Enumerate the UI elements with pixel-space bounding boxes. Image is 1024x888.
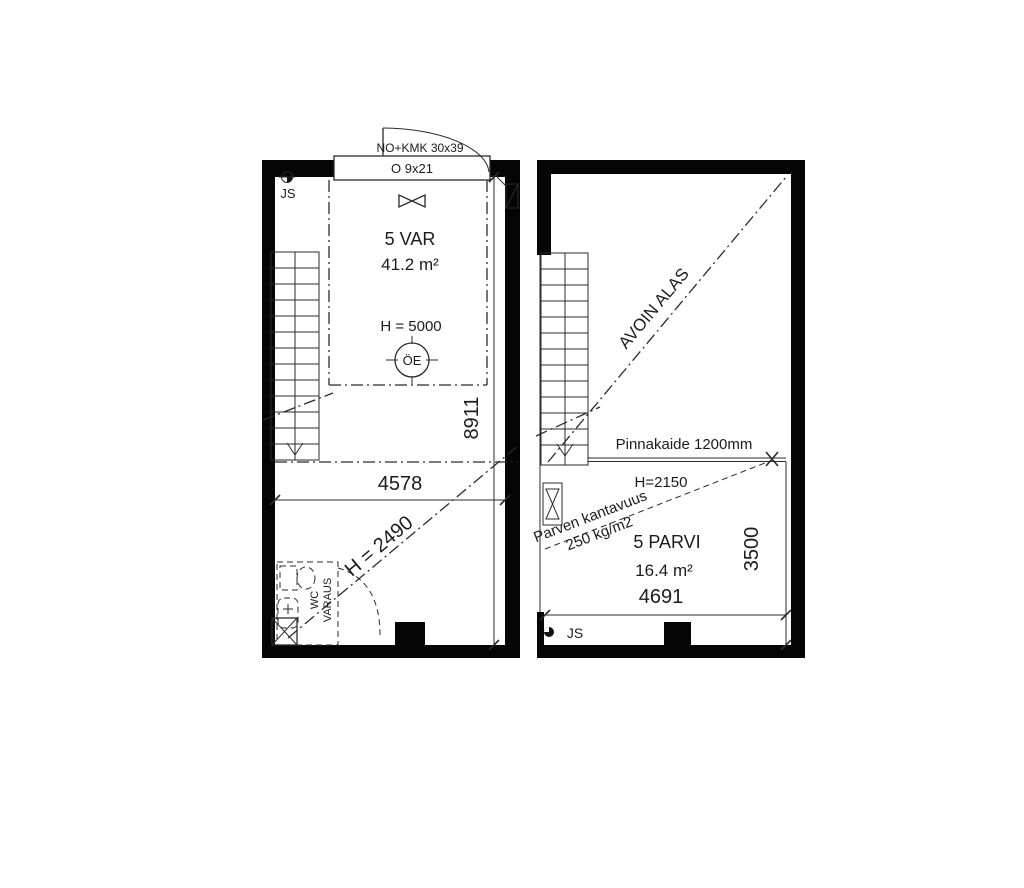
hourglass-icon	[543, 483, 562, 525]
oe-symbol-label: ÖE	[403, 353, 422, 368]
room-area: 41.2 m²	[381, 255, 439, 274]
corner-mark-label: JS	[567, 625, 583, 641]
shaft-box-icon	[272, 618, 297, 645]
door-label: NO+KMK 30x39	[376, 141, 463, 155]
valve-icon	[399, 195, 425, 207]
wall-top	[537, 160, 805, 174]
wall-bottom	[537, 645, 805, 658]
wall-left	[262, 160, 275, 658]
width-dimension: 4578	[378, 473, 423, 495]
toilet-tank-icon	[280, 566, 297, 590]
room-name: 5 VAR	[385, 229, 436, 249]
room-area: 16.4 m²	[635, 561, 693, 580]
opening-label: O 9x21	[391, 161, 433, 176]
open-to-below-line	[548, 177, 786, 462]
width-dimension: 4691	[639, 586, 684, 608]
wall-right	[505, 160, 520, 658]
height-dimension: 8911	[461, 396, 483, 439]
open-to-below-label: AVOIN ALAS	[615, 264, 693, 352]
left-plan: O 9x21 NO+KMK 30x39 JS	[262, 128, 520, 658]
floorplan-canvas: O 9x21 NO+KMK 30x39 JS	[0, 0, 1024, 883]
lower-height-label: H = 2490	[341, 512, 418, 581]
wall-bottom	[262, 645, 520, 658]
wall-left-top	[537, 160, 551, 255]
survey-point-icon	[544, 627, 554, 637]
corner-mark-label: JS	[280, 186, 296, 201]
varaus-label: VARAUS	[322, 578, 334, 622]
floorplan-drawing: O 9x21 NO+KMK 30x39 JS	[0, 0, 1024, 883]
room-name: 5 PARVI	[633, 532, 700, 552]
pillar	[664, 622, 691, 645]
right-plan: AVOIN ALAS Pinnakaide 1200mm H=2150 Parv…	[531, 160, 805, 658]
ceiling-height-label: H = 5000	[380, 318, 441, 335]
wall-right	[791, 160, 805, 658]
stairs-right-plan	[536, 253, 600, 465]
wc-label: WC	[309, 591, 321, 609]
toilet-bowl-icon	[297, 567, 315, 589]
pillar	[395, 622, 425, 645]
railing-label: Pinnakaide 1200mm	[616, 436, 753, 453]
height-dimension: 3500	[741, 527, 763, 572]
